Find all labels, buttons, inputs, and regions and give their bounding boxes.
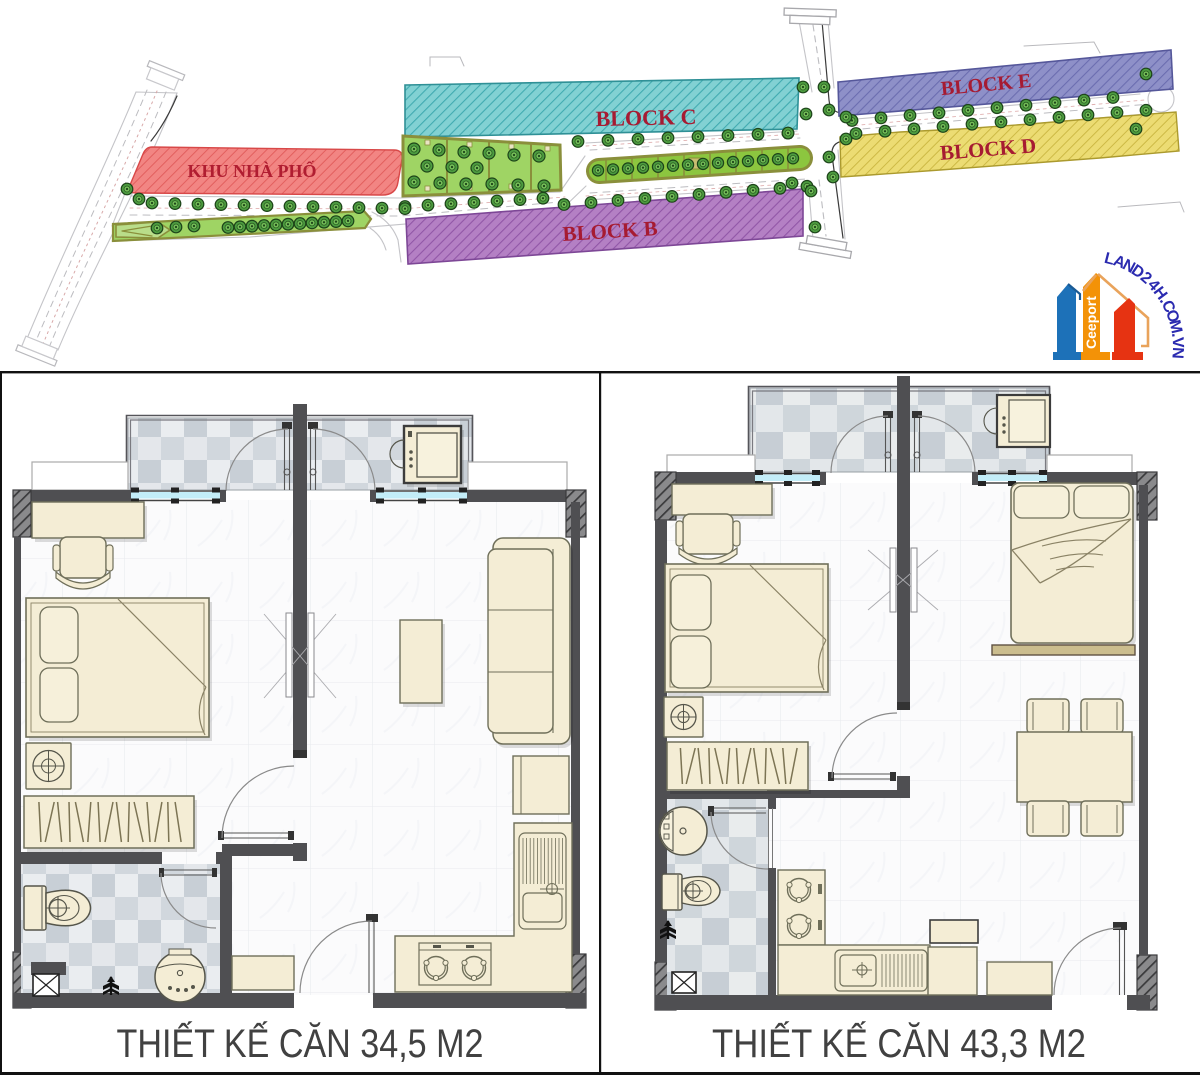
- svg-text:THIẾT KẾ CĂN 43,3 M2: THIẾT KẾ CĂN 43,3 M2: [712, 1020, 1086, 1066]
- svg-text:N: N: [1168, 347, 1186, 360]
- svg-text:Ceeport: Ceeport: [1083, 296, 1099, 349]
- svg-text:THIẾT KẾ CĂN 34,5 M2: THIẾT KẾ CĂN 34,5 M2: [117, 1020, 484, 1066]
- svg-text:KHU NHÀ PHỐ: KHU NHÀ PHỐ: [188, 160, 317, 181]
- svg-text:BLOCK C: BLOCK C: [595, 104, 696, 131]
